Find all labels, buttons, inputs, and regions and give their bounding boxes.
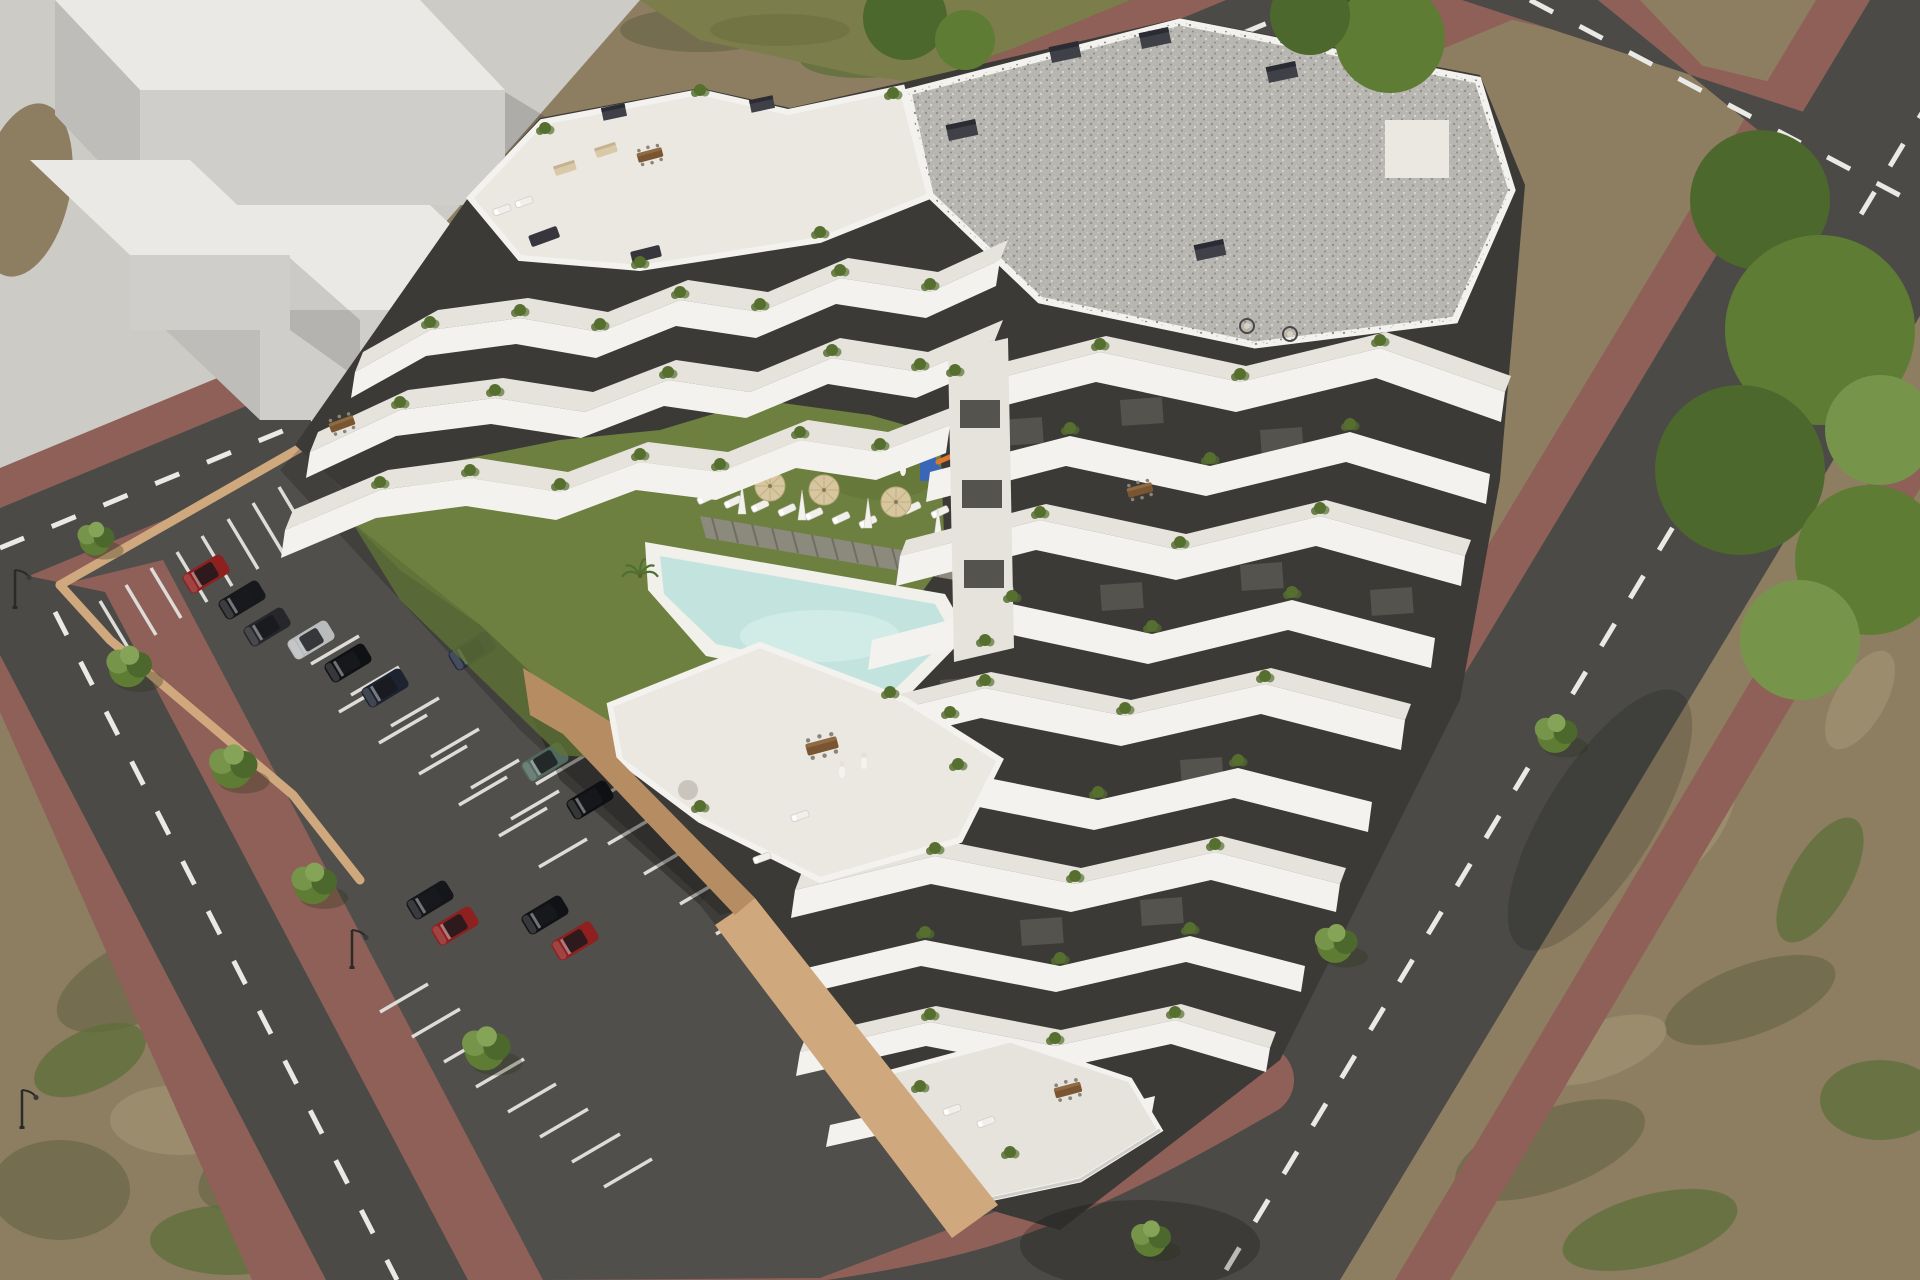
vegetation [77, 0, 1920, 1280]
massing-block-c [30, 160, 290, 330]
street-lamp [20, 1090, 39, 1129]
pool-rim [645, 542, 968, 710]
street-tree [209, 744, 269, 793]
parasol-closed [738, 484, 746, 514]
cascade-balconies [786, 332, 1511, 1147]
grass-strip [640, 0, 1460, 115]
pool-water [660, 556, 952, 696]
courtyard [352, 400, 1014, 836]
streets [0, 0, 1920, 1280]
car [565, 779, 616, 822]
parasol-open [809, 475, 839, 505]
street-tree [1315, 924, 1368, 968]
street-tree [1131, 1220, 1181, 1261]
roof-chimney [946, 119, 979, 141]
courtyard-facade [948, 338, 1014, 662]
tree-shadow-on-road [1474, 664, 1726, 977]
dash-sw [55, 612, 397, 1280]
roof-chimney [1049, 41, 1082, 63]
scrubland-base [0, 0, 1920, 1280]
window-glints [400, 354, 1414, 945]
ground-floor-terrace [880, 1040, 1160, 1200]
dining-table [803, 730, 840, 762]
lawn-retaining-wall [523, 668, 740, 836]
ground [0, 0, 1920, 1280]
balcony-ribbon [281, 425, 950, 558]
tree-shadow-on-road [1020, 1200, 1260, 1280]
roof-chimney [1266, 61, 1299, 83]
egg-chair [1283, 327, 1297, 341]
brick-sidewalks [0, 0, 1920, 1280]
palm-tree [622, 559, 658, 578]
balcony-ribbon [826, 1096, 1155, 1147]
street-lamps [13, 570, 369, 1129]
asphalt-roadways [0, 0, 1920, 1280]
north-wing-balconies [281, 240, 1008, 558]
parasol-closed [798, 490, 806, 520]
balcony-ribbon [814, 768, 1372, 836]
road-northwest [0, 0, 1420, 588]
outdoor-sofa [553, 160, 577, 176]
rooftop-terrace [470, 88, 930, 268]
roof-chimney [1194, 239, 1227, 261]
road-south-connector [540, 1085, 1290, 1280]
balcony-ribbon [796, 1020, 1270, 1076]
dash-ne [1530, 0, 1920, 206]
egg-chair [1240, 319, 1254, 333]
road-northeast [1462, 0, 1920, 262]
balcony-ribbon [956, 348, 1505, 422]
roof-chimney [1139, 27, 1172, 49]
parking-lot [13, 448, 1001, 1280]
render-viewport [0, 0, 1920, 1280]
parasol-open [881, 487, 911, 517]
parasol-closed [864, 498, 872, 528]
street-tree [1535, 714, 1588, 758]
scrub-patches-light [110, 640, 1909, 1155]
retaining-walls [60, 448, 360, 880]
balcony-ribbon [791, 852, 1340, 918]
street-tree [462, 1026, 522, 1075]
massing-model [0, 0, 640, 470]
sidewalk-building-corner [540, 1080, 1258, 1272]
road-center-dashes [0, 0, 1920, 1280]
scrub-patches-olive [0, 8, 1847, 1240]
building-dark-walls [295, 18, 1525, 1230]
lawn-shading [352, 440, 940, 760]
palm-tree [961, 510, 1009, 536]
grass-strip-patches [710, 11, 1353, 89]
balcony-ribbon [896, 516, 1465, 586]
pool-loungers [696, 491, 1005, 531]
road-southeast [1100, 0, 1920, 1280]
street-tree [106, 646, 163, 692]
scrub-patches-green [23, 42, 1920, 1280]
dining-table [1052, 1076, 1084, 1103]
parking-wall-top [60, 448, 300, 585]
lawn [352, 400, 945, 800]
car-suv [520, 741, 571, 784]
car [323, 642, 374, 685]
massing-shadow [505, 92, 600, 262]
car [242, 606, 293, 649]
balcony-plants [371, 84, 1390, 1159]
car [360, 667, 411, 710]
car [550, 920, 601, 963]
massing-shadow [290, 258, 360, 380]
person [861, 752, 867, 769]
person [900, 459, 906, 476]
massing-shadow [540, 312, 640, 470]
roof-access-box [1385, 120, 1449, 178]
street-lamp [350, 930, 369, 969]
parasols-closed [738, 484, 942, 538]
street-tree [77, 522, 123, 560]
pool-deck [700, 516, 1014, 590]
balcony-ribbon [786, 936, 1305, 998]
playground [900, 424, 976, 489]
balcony-ribbon [306, 340, 995, 478]
planter-box [630, 245, 662, 264]
parking-stall-stripes [100, 487, 764, 1187]
car [430, 905, 481, 948]
parasol-open [971, 501, 1001, 531]
balcony-ribbon [841, 684, 1405, 752]
street-tree [291, 863, 348, 909]
aerial-render [0, 0, 1920, 1280]
fire-pit [678, 780, 698, 800]
massing-block-b [150, 205, 540, 420]
dining-table [327, 410, 358, 437]
cast-shadows [280, 448, 940, 1140]
person [839, 761, 845, 778]
parking-wall-left [60, 585, 360, 880]
road-southwest [0, 570, 468, 1280]
massing-block-a [55, 0, 505, 205]
dining-table [1125, 477, 1155, 502]
tree-top-center [863, 0, 1445, 93]
building-base-walls [545, 700, 998, 1238]
dash-nw [0, 0, 1323, 548]
car [181, 553, 232, 596]
parasol-open [755, 471, 785, 501]
car [286, 619, 337, 662]
balcony-ribbon [926, 432, 1490, 504]
car [447, 630, 498, 673]
gravel-roof [908, 22, 1512, 345]
parasols-open [755, 471, 1001, 531]
dash-se [1220, 0, 1920, 1280]
dirt-gap [0, 95, 87, 286]
planter-box [528, 226, 560, 248]
street-lamp [13, 570, 32, 609]
balcony-ribbon [868, 600, 1435, 670]
dining-table [635, 142, 665, 167]
car [405, 879, 456, 922]
plaza-concrete [0, 0, 640, 508]
big-tree-right [1655, 130, 1920, 700]
parasol-closed [934, 508, 942, 538]
terrace-railing [905, 1130, 1160, 1200]
parked-cars [181, 553, 616, 963]
car [520, 894, 571, 937]
corner-terrace [610, 645, 1000, 880]
apartment-building [281, 18, 1525, 1238]
balcony-ribbon [351, 260, 1000, 398]
swimming-pool [645, 542, 968, 710]
parking-asphalt [60, 448, 1000, 1280]
car [217, 579, 268, 622]
outdoor-sofa [594, 142, 618, 158]
pool-water-highlight [740, 610, 900, 662]
